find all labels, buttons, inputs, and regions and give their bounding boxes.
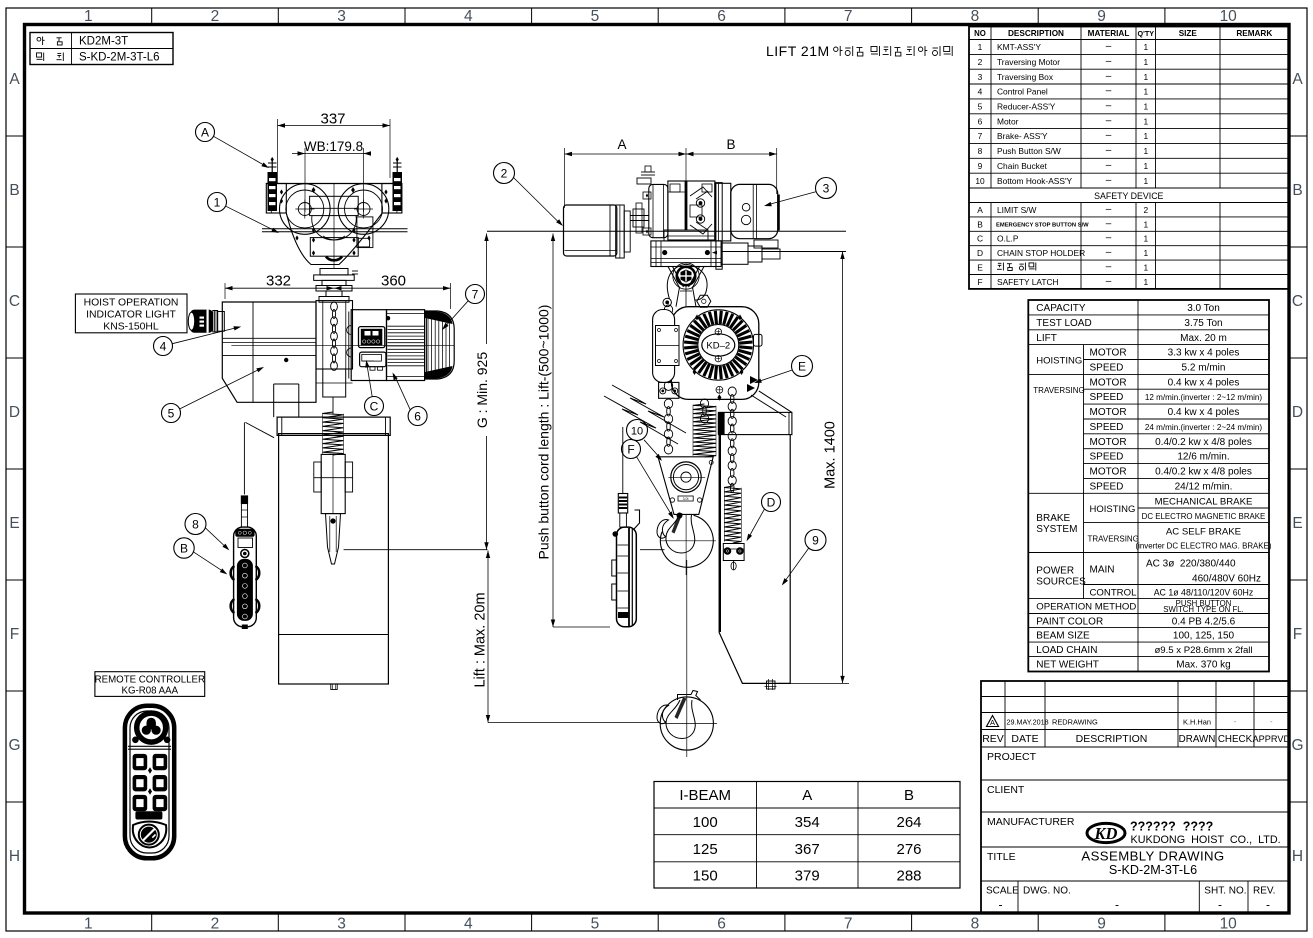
svg-text:7: 7 xyxy=(844,916,853,933)
svg-text:288: 288 xyxy=(896,867,921,884)
svg-text:A: A xyxy=(1292,71,1303,88)
svg-text:MOTOR: MOTOR xyxy=(1090,407,1127,418)
svg-text:5: 5 xyxy=(978,102,983,112)
svg-text:E: E xyxy=(977,263,983,273)
svg-text:0.4 kw x 4 poles: 0.4 kw x 4 poles xyxy=(1168,407,1240,418)
svg-text:1: 1 xyxy=(978,42,983,52)
svg-text:460/480V 60Hz: 460/480V 60Hz xyxy=(1192,574,1261,585)
svg-text:1: 1 xyxy=(1143,87,1148,97)
svg-text:CHECK: CHECK xyxy=(1218,734,1253,745)
svg-text:0.4/0.2 kw x 4/8 poles: 0.4/0.2 kw x 4/8 poles xyxy=(1155,437,1252,448)
svg-text:10: 10 xyxy=(1220,8,1238,25)
svg-text:–: – xyxy=(1106,218,1112,229)
svg-text:ASSEMBLY DRAWING: ASSEMBLY DRAWING xyxy=(1081,849,1224,864)
svg-text:DESCRIPTION: DESCRIPTION xyxy=(1076,733,1148,745)
svg-text:E: E xyxy=(798,360,806,374)
svg-text:5: 5 xyxy=(168,407,175,421)
svg-text:3: 3 xyxy=(823,182,830,196)
svg-text:0.4/0.2 kw x 4/8 poles: 0.4/0.2 kw x 4/8 poles xyxy=(1155,467,1252,478)
svg-text:REMARK: REMARK xyxy=(1236,29,1272,38)
svg-text:LIFT: LIFT xyxy=(1036,333,1057,344)
svg-text:Traversing Box: Traversing Box xyxy=(997,72,1054,82)
svg-text:ø9.5 x P28.6mm x 2fall: ø9.5 x P28.6mm x 2fall xyxy=(1154,645,1252,656)
svg-text:A: A xyxy=(201,126,209,140)
svg-text:MATERIAL: MATERIAL xyxy=(1088,29,1130,38)
svg-text:TRAVERSING: TRAVERSING xyxy=(1088,535,1139,544)
svg-text:SCALE: SCALE xyxy=(986,886,1019,897)
svg-text:B: B xyxy=(977,219,983,229)
svg-text:PAINT COLOR: PAINT COLOR xyxy=(1036,617,1103,628)
svg-text:Bottom Hook-ASS'Y: Bottom Hook-ASS'Y xyxy=(997,176,1073,186)
svg-text:7: 7 xyxy=(472,288,479,302)
svg-text:0.4 kw x 4 poles: 0.4 kw x 4 poles xyxy=(1168,377,1240,388)
svg-text:–: – xyxy=(1106,130,1112,141)
svg-text:NET WEIGHT: NET WEIGHT xyxy=(1036,660,1099,671)
svg-text:1: 1 xyxy=(1143,219,1148,229)
svg-text:KD: KD xyxy=(1094,824,1118,843)
svg-text:1: 1 xyxy=(1143,248,1148,258)
svg-text:1: 1 xyxy=(84,916,93,933)
svg-text:H: H xyxy=(1292,848,1303,865)
svg-text:F: F xyxy=(977,277,982,287)
svg-text:Max. 370 kg: Max. 370 kg xyxy=(1176,660,1230,671)
svg-text:6: 6 xyxy=(717,916,726,933)
svg-text:10: 10 xyxy=(1220,916,1238,933)
svg-text:8: 8 xyxy=(971,916,980,933)
svg-text:1: 1 xyxy=(1143,263,1148,273)
svg-text:EMERGENCY STOP BUTTON S/W: EMERGENCY STOP BUTTON S/W xyxy=(996,222,1089,228)
svg-text:354: 354 xyxy=(795,814,820,831)
svg-text:HOISTING: HOISTING xyxy=(1090,504,1136,515)
svg-text:367: 367 xyxy=(795,841,820,858)
svg-text:1: 1 xyxy=(1143,176,1148,186)
svg-text:9: 9 xyxy=(978,161,983,171)
svg-text:3.0 Ton: 3.0 Ton xyxy=(1187,303,1220,314)
svg-text:G : Min. 925: G : Min. 925 xyxy=(474,352,490,428)
svg-text:?????? ????: ?????? ???? xyxy=(1130,820,1213,834)
svg-text:G: G xyxy=(8,737,20,754)
svg-text:B: B xyxy=(180,542,188,556)
svg-text:–: – xyxy=(1106,175,1112,186)
svg-text:379: 379 xyxy=(795,867,820,884)
svg-text:Q'TY: Q'TY xyxy=(1138,29,1155,38)
svg-text:9: 9 xyxy=(1097,916,1106,933)
svg-text:MOTOR: MOTOR xyxy=(1090,377,1127,388)
svg-text:A: A xyxy=(617,137,626,152)
svg-text:8: 8 xyxy=(978,146,983,156)
svg-text:-: - xyxy=(999,897,1003,911)
svg-text:D: D xyxy=(1292,404,1303,421)
svg-text:–: – xyxy=(1106,101,1112,112)
svg-text:3.3 kw x 4 poles: 3.3 kw x 4 poles xyxy=(1168,348,1240,359)
svg-text:LOAD CHAIN: LOAD CHAIN xyxy=(1036,645,1097,656)
svg-text:2: 2 xyxy=(978,57,983,67)
svg-text:1: 1 xyxy=(1143,161,1148,171)
svg-text:6: 6 xyxy=(414,410,421,424)
svg-text:–: – xyxy=(1106,276,1112,287)
svg-text:–: – xyxy=(1106,71,1112,82)
svg-text:4: 4 xyxy=(464,916,473,933)
svg-text:9: 9 xyxy=(812,534,819,548)
svg-text:Traversing Motor: Traversing Motor xyxy=(997,57,1060,67)
svg-text:G: G xyxy=(1291,737,1303,754)
svg-text:3: 3 xyxy=(978,72,983,82)
svg-text:O.L.P: O.L.P xyxy=(997,234,1019,244)
svg-text:1: 1 xyxy=(1143,146,1148,156)
svg-text:1: 1 xyxy=(1143,116,1148,126)
svg-text:(inverter DC ELECTRO MAG. BRAK: (inverter DC ELECTRO MAG. BRAKE) xyxy=(1136,541,1272,550)
svg-text:SPEED: SPEED xyxy=(1090,481,1124,492)
svg-text:2: 2 xyxy=(501,167,508,181)
svg-text:REV: REV xyxy=(982,733,1004,745)
svg-text:4: 4 xyxy=(160,340,167,354)
svg-text:2: 2 xyxy=(211,8,220,25)
svg-text:KG-R08 AAA: KG-R08 AAA xyxy=(122,686,179,697)
svg-text:B: B xyxy=(9,182,19,199)
svg-text:1: 1 xyxy=(214,196,221,210)
svg-text:9: 9 xyxy=(1097,8,1106,25)
svg-text:150: 150 xyxy=(693,867,718,884)
svg-text:B: B xyxy=(1292,182,1302,199)
svg-text:-: - xyxy=(1218,897,1222,911)
svg-text:REDRAWING: REDRAWING xyxy=(1052,718,1098,727)
svg-text:F: F xyxy=(627,443,634,457)
svg-text:125: 125 xyxy=(693,841,718,858)
svg-text:Motor: Motor xyxy=(997,116,1019,126)
svg-text:C: C xyxy=(1292,293,1303,310)
svg-text:F: F xyxy=(1293,626,1302,643)
svg-text:SIZE: SIZE xyxy=(1179,29,1198,38)
svg-text:332: 332 xyxy=(266,273,291,290)
svg-text:HOISTING: HOISTING xyxy=(1036,356,1082,367)
svg-text:SOURCES: SOURCES xyxy=(1036,577,1086,588)
svg-text:D: D xyxy=(9,404,20,421)
svg-text:10: 10 xyxy=(631,426,643,438)
svg-text:TITLE: TITLE xyxy=(987,851,1016,863)
svg-text:H: H xyxy=(9,848,20,865)
svg-text:LIMIT S/W: LIMIT S/W xyxy=(997,205,1036,215)
svg-text:–: – xyxy=(1106,247,1112,258)
svg-text:Push Button S/W: Push Button S/W xyxy=(997,146,1061,156)
svg-text:1: 1 xyxy=(1143,57,1148,67)
svg-text:1: 1 xyxy=(1143,72,1148,82)
svg-text:360: 360 xyxy=(381,273,406,290)
svg-text:264: 264 xyxy=(896,814,921,831)
svg-text:KD2M-3T: KD2M-3T xyxy=(79,36,128,48)
svg-text:C: C xyxy=(370,400,379,414)
svg-text:1: 1 xyxy=(1143,277,1148,287)
svg-text:6: 6 xyxy=(717,8,726,25)
svg-text:C: C xyxy=(977,234,983,244)
svg-text:SAFETY DEVICE: SAFETY DEVICE xyxy=(1094,191,1163,201)
svg-text:3.0t: 3.0t xyxy=(683,497,689,501)
svg-text:MANUFACTURER: MANUFACTURER xyxy=(987,816,1075,828)
svg-text:7: 7 xyxy=(844,8,853,25)
svg-text:5: 5 xyxy=(591,916,600,933)
svg-text:-: - xyxy=(1270,717,1273,726)
svg-text:WB:179.8: WB:179.8 xyxy=(304,139,363,154)
svg-text:A: A xyxy=(802,787,812,804)
svg-text:DRAWN: DRAWN xyxy=(1179,734,1216,745)
svg-text:SYSTEM: SYSTEM xyxy=(1036,524,1077,535)
svg-text:SPEED: SPEED xyxy=(1090,363,1124,374)
svg-text:HOIST OPERATION: HOIST OPERATION xyxy=(84,298,179,309)
svg-text:AC 1ø 48/110/120V 60Hz: AC 1ø 48/110/120V 60Hz xyxy=(1154,588,1254,598)
svg-text:D: D xyxy=(977,248,983,258)
svg-text:CLIENT: CLIENT xyxy=(987,784,1025,796)
svg-text:Max. 20 m: Max. 20 m xyxy=(1180,333,1227,344)
svg-text:24/12 m/min.: 24/12 m/min. xyxy=(1175,481,1233,492)
svg-text:-: - xyxy=(1266,897,1270,911)
svg-text:–: – xyxy=(1106,233,1112,244)
svg-text:AC SELF BRAKE: AC SELF BRAKE xyxy=(1166,526,1241,537)
svg-text:PROJECT: PROJECT xyxy=(987,751,1037,763)
svg-text:E: E xyxy=(9,515,19,532)
svg-text:SPEED: SPEED xyxy=(1090,452,1124,463)
svg-text:4: 4 xyxy=(978,87,983,97)
svg-text:Reducer-ASS'Y: Reducer-ASS'Y xyxy=(997,102,1056,112)
svg-text:CAPACITY: CAPACITY xyxy=(1036,303,1086,314)
svg-text:B: B xyxy=(904,787,914,804)
svg-text:A: A xyxy=(990,718,995,727)
svg-text:REV.: REV. xyxy=(1253,886,1275,897)
svg-text:12 m/min.(inverter : 2~12 m/mi: 12 m/min.(inverter : 2~12 m/min) xyxy=(1145,393,1262,402)
svg-text:OPERATION METHOD: OPERATION METHOD xyxy=(1036,602,1136,613)
svg-text:I-BEAM: I-BEAM xyxy=(679,787,731,804)
svg-text:D: D xyxy=(767,496,776,510)
svg-text:CHAIN STOP HOLDER: CHAIN STOP HOLDER xyxy=(997,248,1085,258)
svg-text:10: 10 xyxy=(975,176,985,186)
svg-text:TRAVERSING: TRAVERSING xyxy=(1033,386,1084,395)
svg-text:NO: NO xyxy=(974,29,986,38)
svg-text:Chain Bucket: Chain Bucket xyxy=(997,161,1047,171)
svg-text:CONTROL: CONTROL xyxy=(1090,588,1138,599)
svg-text:MOTOR: MOTOR xyxy=(1090,348,1127,359)
svg-text:3: 3 xyxy=(337,8,346,25)
svg-text:REMOTE CONTROLLER: REMOTE CONTROLLER xyxy=(95,674,205,685)
svg-text:4: 4 xyxy=(464,8,473,25)
svg-text:Push button cord length : Lift: Push button cord length : Lift-(500~1000… xyxy=(536,305,552,560)
svg-text:KNS-150HL: KNS-150HL xyxy=(103,322,159,333)
svg-text:1: 1 xyxy=(84,8,93,25)
svg-text:–: – xyxy=(1106,160,1112,171)
svg-text:1: 1 xyxy=(1143,131,1148,141)
svg-text:K.H.Han: K.H.Han xyxy=(1183,718,1211,727)
svg-text:Max. 1400: Max. 1400 xyxy=(823,421,839,489)
svg-text:Lift : Max. 20m: Lift : Max. 20m xyxy=(473,592,489,687)
svg-text:–: – xyxy=(1106,86,1112,97)
svg-text:5.2 m/min: 5.2 m/min xyxy=(1182,363,1226,374)
svg-text:A: A xyxy=(9,71,20,88)
svg-text:S-KD-2M-3T-L6: S-KD-2M-3T-L6 xyxy=(1109,863,1197,877)
svg-text:SPEED: SPEED xyxy=(1090,392,1124,403)
svg-text:–: – xyxy=(1106,56,1112,67)
svg-text:8: 8 xyxy=(192,518,199,532)
svg-text:KUKDONG HOIST CO., LTD.: KUKDONG HOIST CO., LTD. xyxy=(1131,834,1281,846)
svg-text:–: – xyxy=(1106,41,1112,52)
svg-text:DWG. NO.: DWG. NO. xyxy=(1023,886,1071,897)
svg-text:SPEED: SPEED xyxy=(1090,422,1124,433)
svg-text:B: B xyxy=(726,137,735,152)
svg-text:MOTOR: MOTOR xyxy=(1090,467,1127,478)
svg-text:LIFT 21M: LIFT 21M xyxy=(766,43,830,59)
svg-text:DATE: DATE xyxy=(1011,733,1038,745)
svg-text:F: F xyxy=(10,626,19,643)
svg-text:TEST LOAD: TEST LOAD xyxy=(1036,318,1091,329)
svg-text:0.4 PB 4.2/5.6: 0.4 PB 4.2/5.6 xyxy=(1172,617,1236,628)
svg-text:DESCRIPTION: DESCRIPTION xyxy=(1008,29,1064,38)
svg-text:12/6 m/min.: 12/6 m/min. xyxy=(1177,452,1229,463)
svg-text:Brake- ASS'Y: Brake- ASS'Y xyxy=(997,131,1048,141)
svg-text:–: – xyxy=(1106,115,1112,126)
svg-text:-: - xyxy=(1234,717,1237,726)
svg-text:276: 276 xyxy=(896,841,921,858)
svg-text:1: 1 xyxy=(1143,234,1148,244)
svg-text:MAIN: MAIN xyxy=(1090,565,1115,576)
svg-text:MECHANICAL BRAKE: MECHANICAL BRAKE xyxy=(1155,496,1253,507)
svg-text:–: – xyxy=(1106,262,1112,273)
svg-text:7: 7 xyxy=(978,131,983,141)
svg-text:Control Panel: Control Panel xyxy=(997,87,1048,97)
svg-text:KMT-ASS'Y: KMT-ASS'Y xyxy=(997,42,1041,52)
svg-text:BRAKE: BRAKE xyxy=(1036,513,1070,524)
svg-text:5: 5 xyxy=(591,8,600,25)
svg-text:C: C xyxy=(9,293,20,310)
svg-text:BEAM SIZE: BEAM SIZE xyxy=(1036,631,1090,642)
svg-text:E: E xyxy=(1292,515,1302,532)
svg-text:100: 100 xyxy=(693,814,718,831)
svg-text:SHT. NO.: SHT. NO. xyxy=(1204,886,1246,897)
svg-text:MOTOR: MOTOR xyxy=(1090,437,1127,448)
svg-text:8: 8 xyxy=(971,8,980,25)
svg-text:POWER: POWER xyxy=(1036,566,1074,577)
svg-text:SAFETY LATCH: SAFETY LATCH xyxy=(997,277,1059,287)
svg-text:KD–2: KD–2 xyxy=(706,341,730,352)
svg-text:24 m/min.(inverter : 2~24 m/mi: 24 m/min.(inverter : 2~24 m/min) xyxy=(1145,423,1262,432)
svg-text:1: 1 xyxy=(1143,42,1148,52)
svg-text:SWITCH TYPE ON FL.: SWITCH TYPE ON FL. xyxy=(1163,605,1243,614)
svg-text:DC ELECTRO MAGNETIC BRAKE: DC ELECTRO MAGNETIC BRAKE xyxy=(1142,512,1266,521)
svg-text:AC 3ø 220/380/440: AC 3ø 220/380/440 xyxy=(1146,559,1236,570)
svg-text:3: 3 xyxy=(337,916,346,933)
svg-text:29.MAY.2018: 29.MAY.2018 xyxy=(1007,718,1049,727)
svg-text:2: 2 xyxy=(1143,205,1148,215)
svg-text:-: - xyxy=(1115,897,1119,911)
svg-text:–: – xyxy=(1106,145,1112,156)
svg-text:–: – xyxy=(1106,204,1112,215)
svg-text:1: 1 xyxy=(1143,102,1148,112)
svg-text:337: 337 xyxy=(320,111,345,128)
svg-text:S-KD-2M-3T-L6: S-KD-2M-3T-L6 xyxy=(79,52,160,64)
svg-text:2: 2 xyxy=(211,916,220,933)
svg-text:3.75 Ton: 3.75 Ton xyxy=(1184,318,1222,329)
svg-text:A: A xyxy=(977,205,983,215)
svg-text:INDICATOR LIGHT: INDICATOR LIGHT xyxy=(86,310,176,321)
svg-text:6: 6 xyxy=(978,116,983,126)
svg-text:100, 125, 150: 100, 125, 150 xyxy=(1173,631,1235,642)
svg-text:APPRVD: APPRVD xyxy=(1252,734,1290,744)
